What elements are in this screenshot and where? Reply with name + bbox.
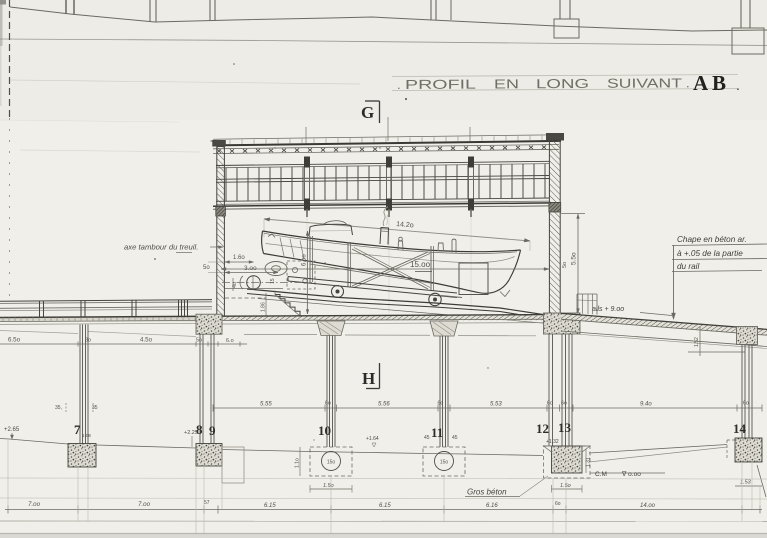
svg-text:1.86: 1.86 xyxy=(261,302,267,312)
svg-text:5o: 5o xyxy=(562,262,568,268)
svg-text:1.6o: 1.6o xyxy=(233,255,245,261)
svg-text:6o: 6o xyxy=(555,501,561,507)
svg-text:8: 8 xyxy=(196,422,203,437)
svg-text:3.oo: 3.oo xyxy=(244,265,257,272)
svg-text:H: H xyxy=(362,369,375,388)
svg-text:C.M: C.M xyxy=(595,471,607,478)
svg-text:45: 45 xyxy=(424,435,430,441)
svg-text:G: G xyxy=(361,103,374,122)
svg-text:13: 13 xyxy=(558,420,572,435)
svg-text:+2.65: +2.65 xyxy=(4,427,20,433)
svg-text:PROFIL: PROFIL xyxy=(405,77,476,92)
svg-text:axe tambour du treuil.: axe tambour du treuil. xyxy=(124,243,198,252)
svg-text:6o: 6o xyxy=(325,401,331,407)
svg-text:6o: 6o xyxy=(561,401,567,407)
svg-text:LONG: LONG xyxy=(536,76,589,91)
svg-text:45: 45 xyxy=(452,435,458,441)
svg-text:15o: 15o xyxy=(327,460,336,466)
svg-text:6o: 6o xyxy=(438,401,444,407)
svg-text:+1.32: +1.32 xyxy=(546,439,559,445)
svg-text:5o: 5o xyxy=(203,265,210,271)
svg-text:3o: 3o xyxy=(85,338,91,344)
svg-text:6.o: 6.o xyxy=(226,338,234,344)
svg-text:15.oo: 15.oo xyxy=(410,260,431,269)
svg-text:+1.64: +1.64 xyxy=(366,436,379,442)
svg-text:1.31: 1.31 xyxy=(586,457,592,467)
svg-text:Gros béton: Gros béton xyxy=(467,488,507,497)
svg-text:7: 7 xyxy=(74,422,81,437)
svg-text:10: 10 xyxy=(318,423,331,438)
svg-text:14: 14 xyxy=(733,421,747,436)
svg-text:6o: 6o xyxy=(547,401,553,407)
svg-text:6.5o: 6.5o xyxy=(8,337,21,344)
svg-text:EN: EN xyxy=(494,76,519,91)
svg-text:5.53: 5.53 xyxy=(490,402,502,408)
svg-text:15o: 15o xyxy=(440,460,449,466)
svg-text:6o: 6o xyxy=(743,401,749,407)
svg-text:6.15: 6.15 xyxy=(264,503,276,509)
svg-text:7.oo: 7.oo xyxy=(28,501,41,508)
svg-text:.: . xyxy=(397,77,401,92)
svg-text:1.5o: 1.5o xyxy=(560,483,571,489)
svg-text:11: 11 xyxy=(431,425,443,440)
svg-text:9.4o: 9.4o xyxy=(640,402,652,408)
svg-text:57: 57 xyxy=(204,500,210,506)
svg-text:5.5o: 5.5o xyxy=(571,252,578,265)
svg-text:15: 15 xyxy=(270,278,276,284)
svg-text:Chape en béton ar.: Chape en béton ar. xyxy=(677,235,747,244)
svg-text:5o: 5o xyxy=(196,338,202,344)
svg-text:6.oo: 6.oo xyxy=(302,254,308,266)
svg-text:4o: 4o xyxy=(232,282,238,288)
svg-text:14.oo: 14.oo xyxy=(640,503,656,509)
svg-text:1.08: 1.08 xyxy=(82,433,91,438)
svg-text:7.oo: 7.oo xyxy=(138,501,151,508)
svg-text:1.1o: 1.1o xyxy=(295,458,301,468)
svg-text:A: A xyxy=(693,71,709,95)
svg-text:5.56: 5.56 xyxy=(378,402,390,408)
svg-text:à +.05 de la partie: à +.05 de la partie xyxy=(677,249,743,258)
svg-text:4.5o: 4.5o xyxy=(140,337,153,344)
svg-text:35,: 35, xyxy=(55,405,62,411)
svg-text:5.55: 5.55 xyxy=(260,402,272,408)
svg-text:∇ o.oo: ∇ o.oo xyxy=(621,470,641,478)
svg-text:6.16: 6.16 xyxy=(486,503,498,509)
svg-text:6.15: 6.15 xyxy=(379,503,391,509)
svg-text:B: B xyxy=(712,71,726,95)
svg-text:SUIVANT: SUIVANT xyxy=(607,75,682,90)
svg-text:.: . xyxy=(736,77,740,93)
svg-text:du rail: du rail xyxy=(677,262,699,271)
svg-text:14.2o: 14.2o xyxy=(396,221,414,229)
svg-text:9: 9 xyxy=(209,423,216,438)
svg-text:.: . xyxy=(686,75,690,90)
svg-text:12: 12 xyxy=(536,421,549,436)
svg-text:1.52: 1.52 xyxy=(694,337,700,347)
svg-text:1.5o: 1.5o xyxy=(323,483,334,489)
